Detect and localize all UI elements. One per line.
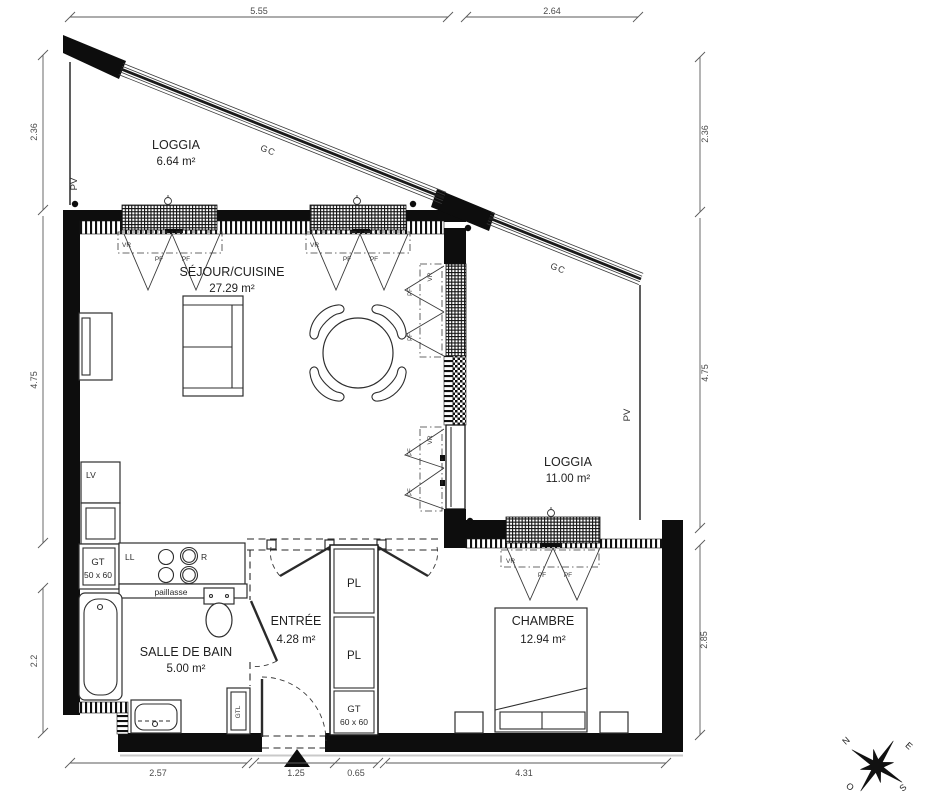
sofa bbox=[183, 296, 243, 396]
label-vr: VR bbox=[122, 242, 131, 249]
wall-bottom-right bbox=[325, 733, 683, 752]
compass-rose: N E S O bbox=[840, 735, 914, 794]
window-handle bbox=[440, 455, 445, 461]
label-paillasse: paillasse bbox=[154, 587, 187, 597]
label-pf: PF bbox=[408, 448, 414, 456]
label-pf: PF bbox=[182, 256, 190, 263]
window-sejour-right-2 bbox=[446, 425, 465, 509]
label-gc-left: GC bbox=[259, 143, 277, 158]
room-entree-area: 4.28 m² bbox=[277, 634, 316, 646]
window-sejour-1 bbox=[122, 205, 217, 230]
floor-plan-page: 5.55 2.64 2.36 4.75 2.2 2.36 4.75 2.85 2… bbox=[0, 0, 926, 800]
wall-right bbox=[662, 520, 683, 752]
dim-bottom-3: 0.65 bbox=[347, 768, 365, 778]
toilet-bowl bbox=[206, 603, 232, 637]
room-bath-area: 5.00 m² bbox=[167, 663, 206, 675]
wall-bath-strip-2 bbox=[117, 713, 128, 734]
label-gt-entry-size: 60 x 60 bbox=[340, 717, 368, 727]
room-bath-name: SALLE DE BAIN bbox=[140, 645, 232, 659]
label-vr: VR bbox=[427, 435, 434, 444]
wall-sejour-right-top bbox=[444, 228, 466, 264]
nightstand-left bbox=[455, 712, 483, 733]
room-sejour-name: SÉJOUR/CUISINE bbox=[180, 264, 285, 279]
window-axis bbox=[548, 510, 555, 517]
wall-diagonal-top-left bbox=[63, 35, 126, 79]
room-loggia-right-name: LOGGIA bbox=[544, 455, 593, 469]
label-pf: PF bbox=[408, 488, 414, 496]
label-pf: PF bbox=[408, 333, 414, 341]
nightstand-right bbox=[600, 712, 628, 733]
window-axis bbox=[354, 198, 361, 205]
dim-right-3: 2.85 bbox=[699, 631, 709, 649]
label-vr: VR bbox=[506, 558, 515, 565]
wall-left bbox=[63, 210, 80, 715]
room-loggia-left-name: LOGGIA bbox=[152, 138, 201, 152]
corner-dot bbox=[72, 201, 78, 207]
label-pf: PF bbox=[564, 572, 572, 579]
dim-bottom-1: 2.57 bbox=[149, 768, 167, 778]
dim-left-3: 2.2 bbox=[29, 655, 39, 668]
label-pf: PF bbox=[370, 256, 378, 263]
dim-bottom-4: 4.31 bbox=[515, 768, 533, 778]
room-loggia-left-area: 6.64 m² bbox=[157, 156, 196, 168]
label-vr: VR bbox=[310, 242, 319, 249]
label-gt-bath-size: 50 x 60 bbox=[84, 570, 112, 580]
dim-right-2: 4.75 bbox=[700, 364, 710, 382]
dim-left-1: 2.36 bbox=[29, 123, 39, 141]
dining-table bbox=[323, 318, 393, 388]
room-loggia-right-area: 11.00 m² bbox=[546, 473, 591, 485]
compass-north: N bbox=[840, 735, 852, 747]
compass-west: O bbox=[844, 781, 856, 793]
room-sejour-area: 27.29 m² bbox=[209, 283, 255, 295]
label-pf: PF bbox=[155, 256, 163, 263]
door-leaf-bath bbox=[251, 601, 277, 661]
dim-top-2: 2.64 bbox=[543, 6, 561, 16]
compass-south: S bbox=[897, 782, 908, 793]
corner-dot bbox=[410, 201, 416, 207]
door-leaf-chambre bbox=[378, 547, 428, 576]
toilet-tank bbox=[204, 588, 234, 604]
entrance-marker bbox=[284, 749, 310, 767]
door-leaf-sejour bbox=[280, 547, 330, 576]
sideboard bbox=[79, 313, 112, 380]
label-gtl: GTL bbox=[235, 705, 242, 718]
label-ll: LL bbox=[125, 552, 135, 562]
dim-bottom-2: 1.25 bbox=[287, 768, 305, 778]
dim-right-1: 2.36 bbox=[700, 125, 710, 143]
label-pl-1: PL bbox=[347, 578, 362, 590]
dim-top-1: 5.55 bbox=[250, 6, 268, 16]
wall-sill-vert bbox=[444, 356, 453, 425]
label-vr: VR bbox=[427, 272, 434, 281]
window-sejour-2 bbox=[310, 205, 406, 230]
compass-star bbox=[852, 741, 902, 791]
living-furniture bbox=[79, 296, 413, 408]
wall-bath-strip bbox=[79, 702, 128, 713]
wall-bottom-left bbox=[118, 733, 262, 752]
dim-left-2: 4.75 bbox=[29, 371, 39, 389]
label-gc-right: GC bbox=[549, 261, 567, 276]
label-pf: PF bbox=[538, 572, 546, 579]
window-sejour-right-1 bbox=[446, 264, 466, 356]
room-chambre-name: CHAMBRE bbox=[512, 614, 575, 628]
window-axis bbox=[165, 198, 172, 205]
label-lv: LV bbox=[86, 470, 96, 480]
label-pv-left: PV bbox=[69, 177, 80, 190]
label-pl-2: PL bbox=[347, 650, 362, 662]
dishwasher bbox=[81, 462, 120, 503]
glass-wall-left bbox=[121, 69, 444, 198]
corner-dot bbox=[467, 518, 473, 524]
wall-checker bbox=[453, 356, 466, 425]
room-chambre-area: 12.94 m² bbox=[520, 634, 566, 646]
label-gt-entry: GT bbox=[347, 704, 360, 715]
label-pv-right: PV bbox=[622, 408, 633, 421]
wall-sejour-right-bottom bbox=[444, 509, 466, 548]
floor-plan-drawing: 5.55 2.64 2.36 4.75 2.2 2.36 4.75 2.85 2… bbox=[0, 0, 926, 800]
corner-dot bbox=[465, 225, 471, 231]
sink-unit bbox=[81, 503, 120, 544]
label-gt-bath: GT bbox=[91, 557, 104, 568]
kitchen-counter bbox=[119, 543, 245, 584]
window-chambre bbox=[506, 517, 600, 543]
window-handle bbox=[542, 543, 560, 547]
compass-east: E bbox=[903, 740, 914, 751]
window-handle bbox=[440, 480, 445, 486]
label-r: R bbox=[201, 552, 207, 562]
door-post bbox=[267, 540, 276, 549]
label-pf: PF bbox=[343, 256, 351, 263]
room-entree-name: ENTRÉE bbox=[271, 613, 322, 628]
label-pf: PF bbox=[408, 288, 414, 296]
